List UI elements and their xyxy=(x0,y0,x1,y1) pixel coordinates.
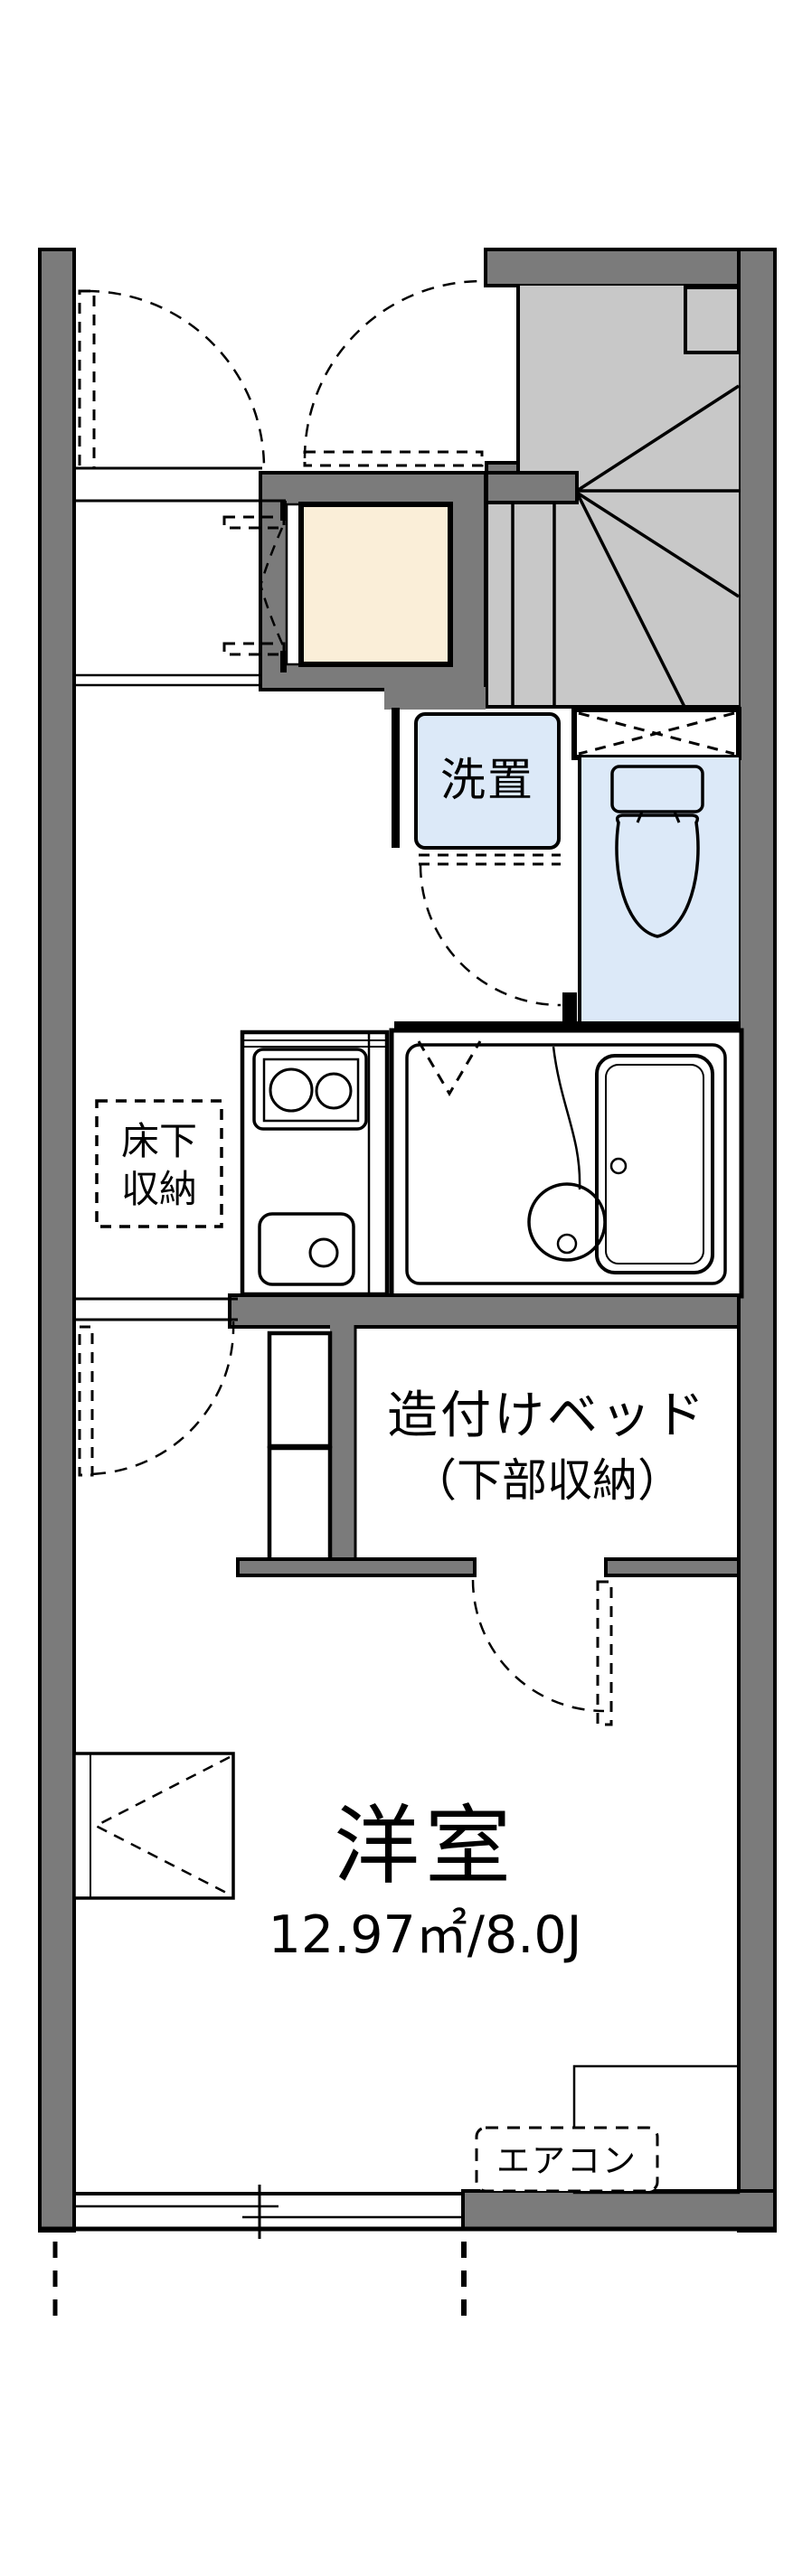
bath-outer xyxy=(392,1030,741,1296)
air-conditioner: エアコン xyxy=(477,2128,657,2191)
western-room: 洋室 12.97㎡/8.0J エアコン xyxy=(40,1753,775,2239)
genkan-floor xyxy=(301,504,450,664)
floorplan-page: 洗置 床下 収納 xyxy=(0,0,812,2576)
kitchen-unit xyxy=(242,1032,387,1294)
left-window xyxy=(74,1753,233,1898)
washer-space: 洗置 xyxy=(392,708,577,1029)
underfloor-storage-label-line2: 収納 xyxy=(121,1167,197,1211)
washer-left-wall xyxy=(392,708,400,848)
entrance-door-right-leaf xyxy=(305,452,482,465)
kitchen-area: 床下 収納 xyxy=(97,1032,387,1294)
entrance-door-left-leaf xyxy=(80,291,94,468)
western-room-area-text: 12.97㎡/8.0J xyxy=(269,1905,582,1965)
kitchen-door-leaf xyxy=(80,1327,92,1475)
built-in-bed-room: 造付けベッド （下部収納） xyxy=(230,1295,739,1725)
aircon-label: エアコン xyxy=(496,2141,637,2180)
bed-room-label-line1: 造付けベッド xyxy=(387,1387,707,1445)
floorplan-drawing: 洗置 床下 収納 xyxy=(0,0,812,2576)
bed-room-door-leaf xyxy=(598,1582,611,1725)
sink-icon xyxy=(260,1214,354,1284)
bed-room-label-line2: （下部収納） xyxy=(411,1454,683,1507)
entrance-wall-step xyxy=(384,687,486,710)
stove-icon xyxy=(254,1049,366,1129)
bed-room-top-wall xyxy=(230,1295,739,1327)
bed-room-door-swing-arc xyxy=(473,1580,604,1711)
toilet-floor xyxy=(579,757,739,1021)
kitchen-door-swing-arc xyxy=(88,1321,233,1474)
underfloor-storage-label-line1: 床下 xyxy=(121,1119,197,1163)
bed-room-bottom-wall-left xyxy=(238,1559,475,1575)
top-wall xyxy=(486,249,775,286)
bed-room-left-wall xyxy=(330,1322,355,1570)
washer-space-label: 洗置 xyxy=(440,754,534,806)
entrance-door-right-swing-arc xyxy=(305,281,482,458)
entrance-door-left-swing-arc xyxy=(87,291,264,468)
stair-divider-wall xyxy=(486,473,577,503)
balcony-boundary xyxy=(55,2242,464,2325)
bed-side-shelf-upper xyxy=(269,1333,330,1446)
stair-upper-area xyxy=(518,286,739,503)
bottom-wall xyxy=(463,2191,775,2229)
bed-side-shelf-lower xyxy=(269,1448,330,1561)
stair-lower-area xyxy=(486,503,739,709)
bathroom xyxy=(392,1030,741,1296)
kitchen-doorway xyxy=(74,1299,238,1475)
left-wall xyxy=(40,249,74,2231)
right-wall xyxy=(739,249,775,2231)
western-room-label: 洋室 xyxy=(334,1797,516,1896)
bed-room-bottom-wall-right xyxy=(606,1559,739,1575)
washroom-door-swing-arc xyxy=(420,865,561,1005)
